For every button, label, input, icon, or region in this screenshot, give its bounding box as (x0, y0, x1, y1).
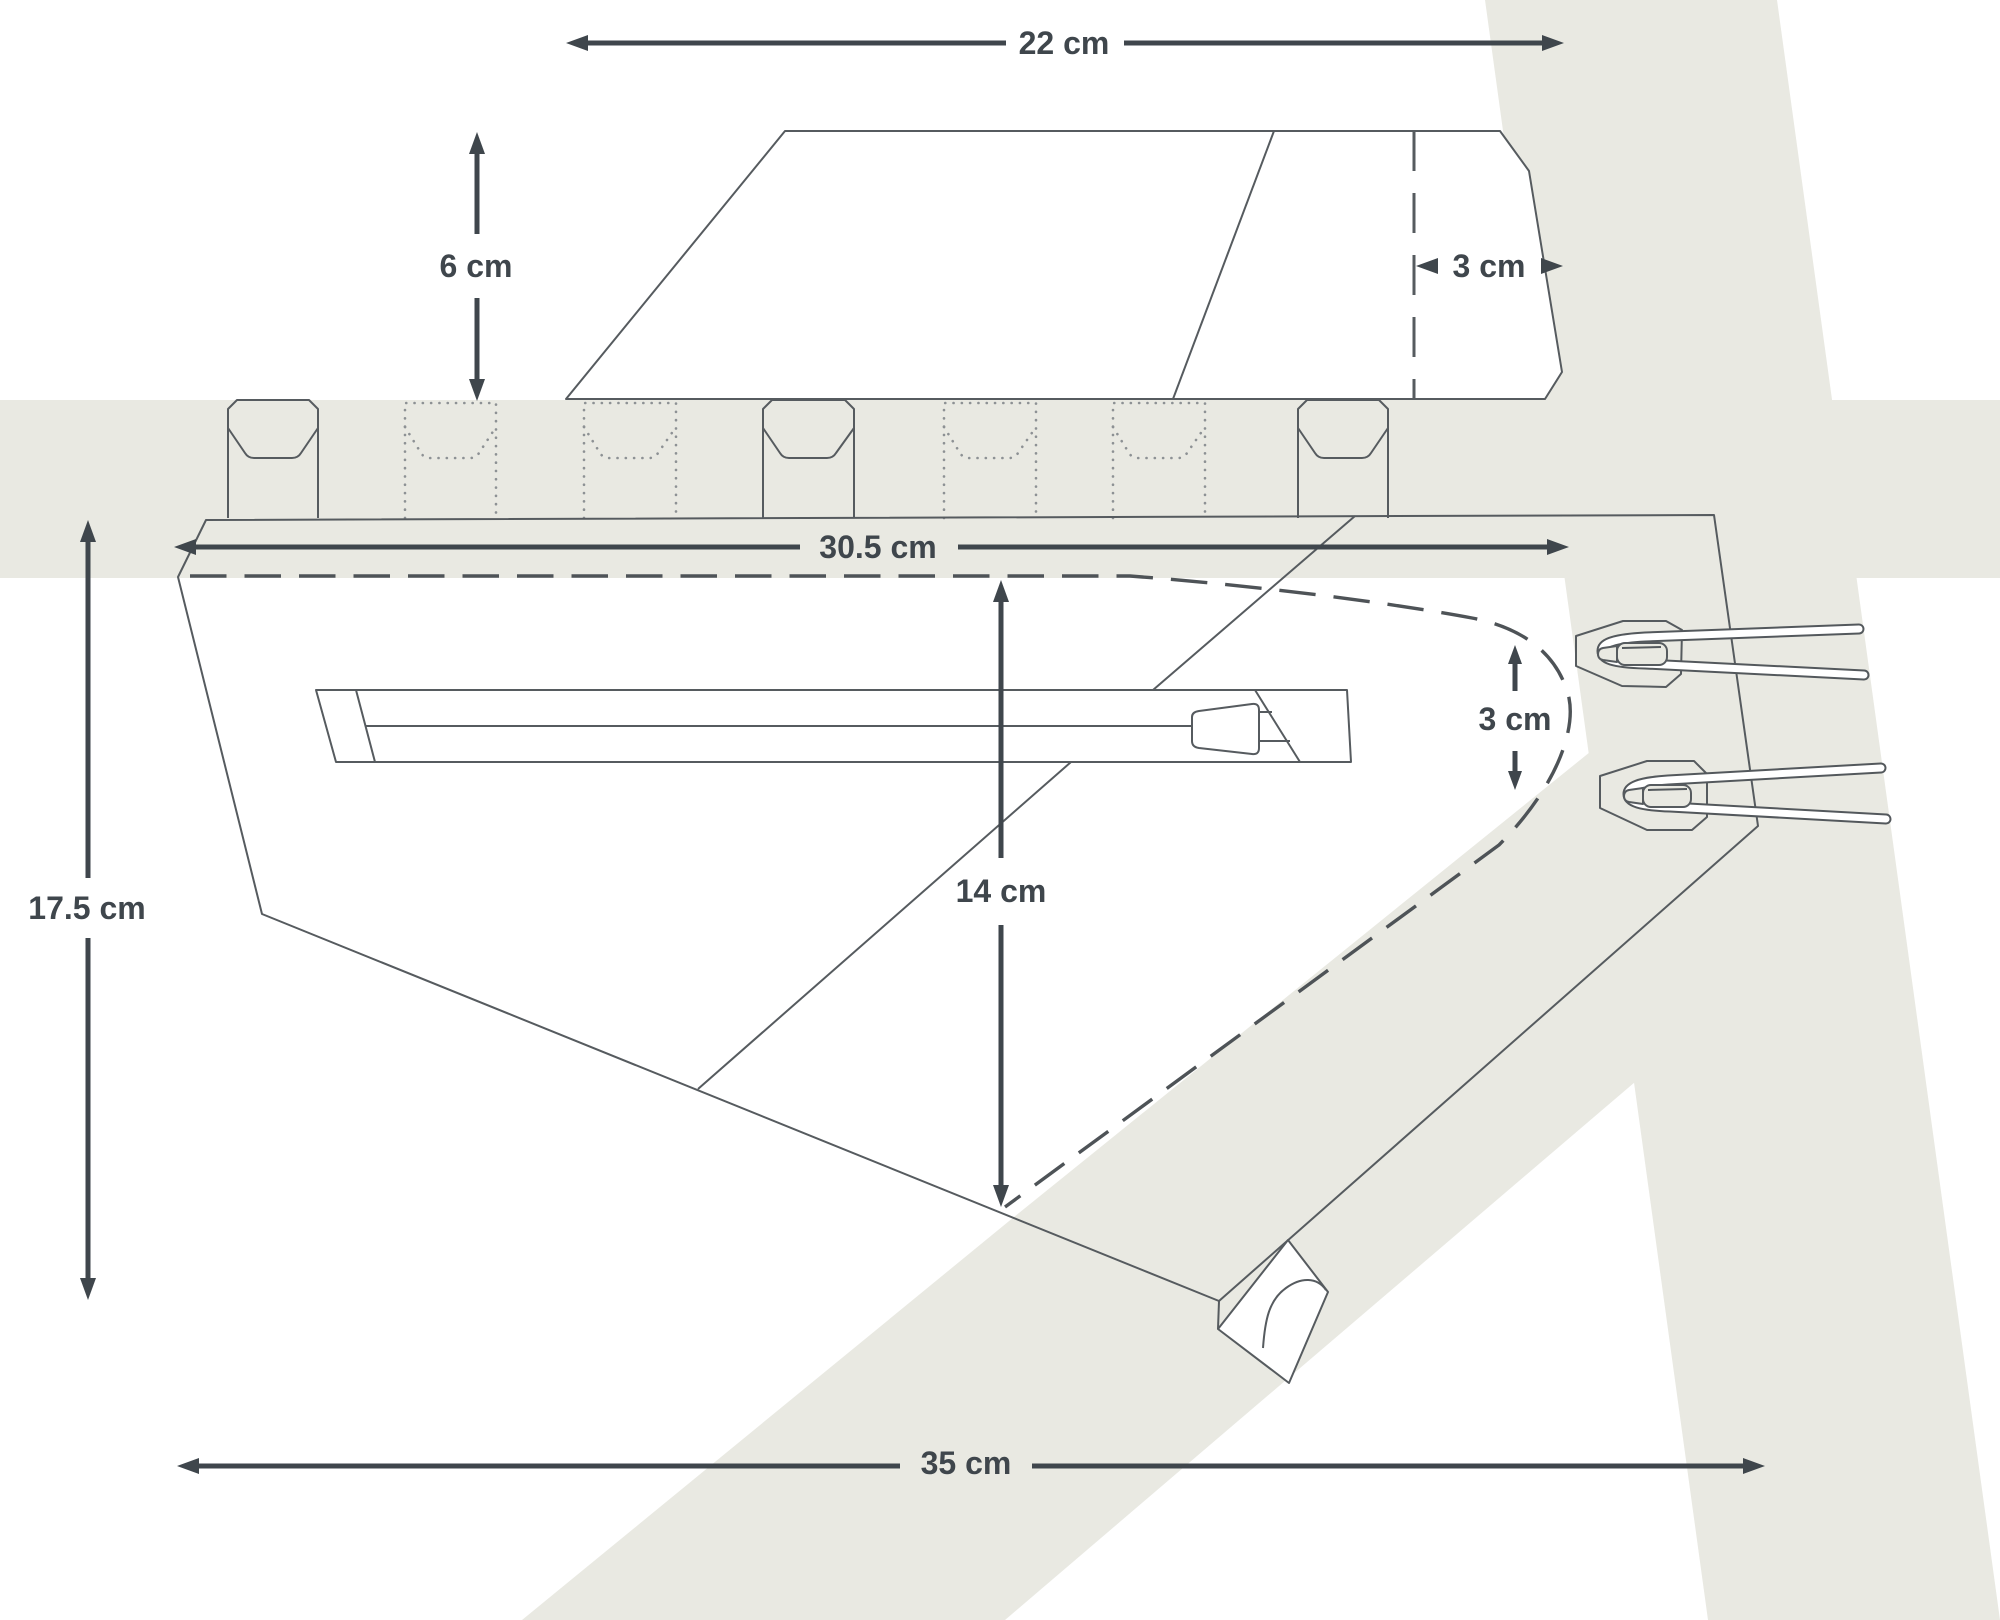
svg-text:30.5 cm: 30.5 cm (819, 529, 936, 565)
svg-text:14 cm: 14 cm (956, 873, 1047, 909)
svg-text:35 cm: 35 cm (921, 1445, 1012, 1481)
svg-text:6 cm: 6 cm (440, 248, 513, 284)
svg-text:17.5 cm: 17.5 cm (28, 890, 145, 926)
svg-text:3 cm: 3 cm (1453, 248, 1526, 284)
svg-text:3 cm: 3 cm (1479, 701, 1552, 737)
svg-text:22 cm: 22 cm (1019, 25, 1110, 61)
